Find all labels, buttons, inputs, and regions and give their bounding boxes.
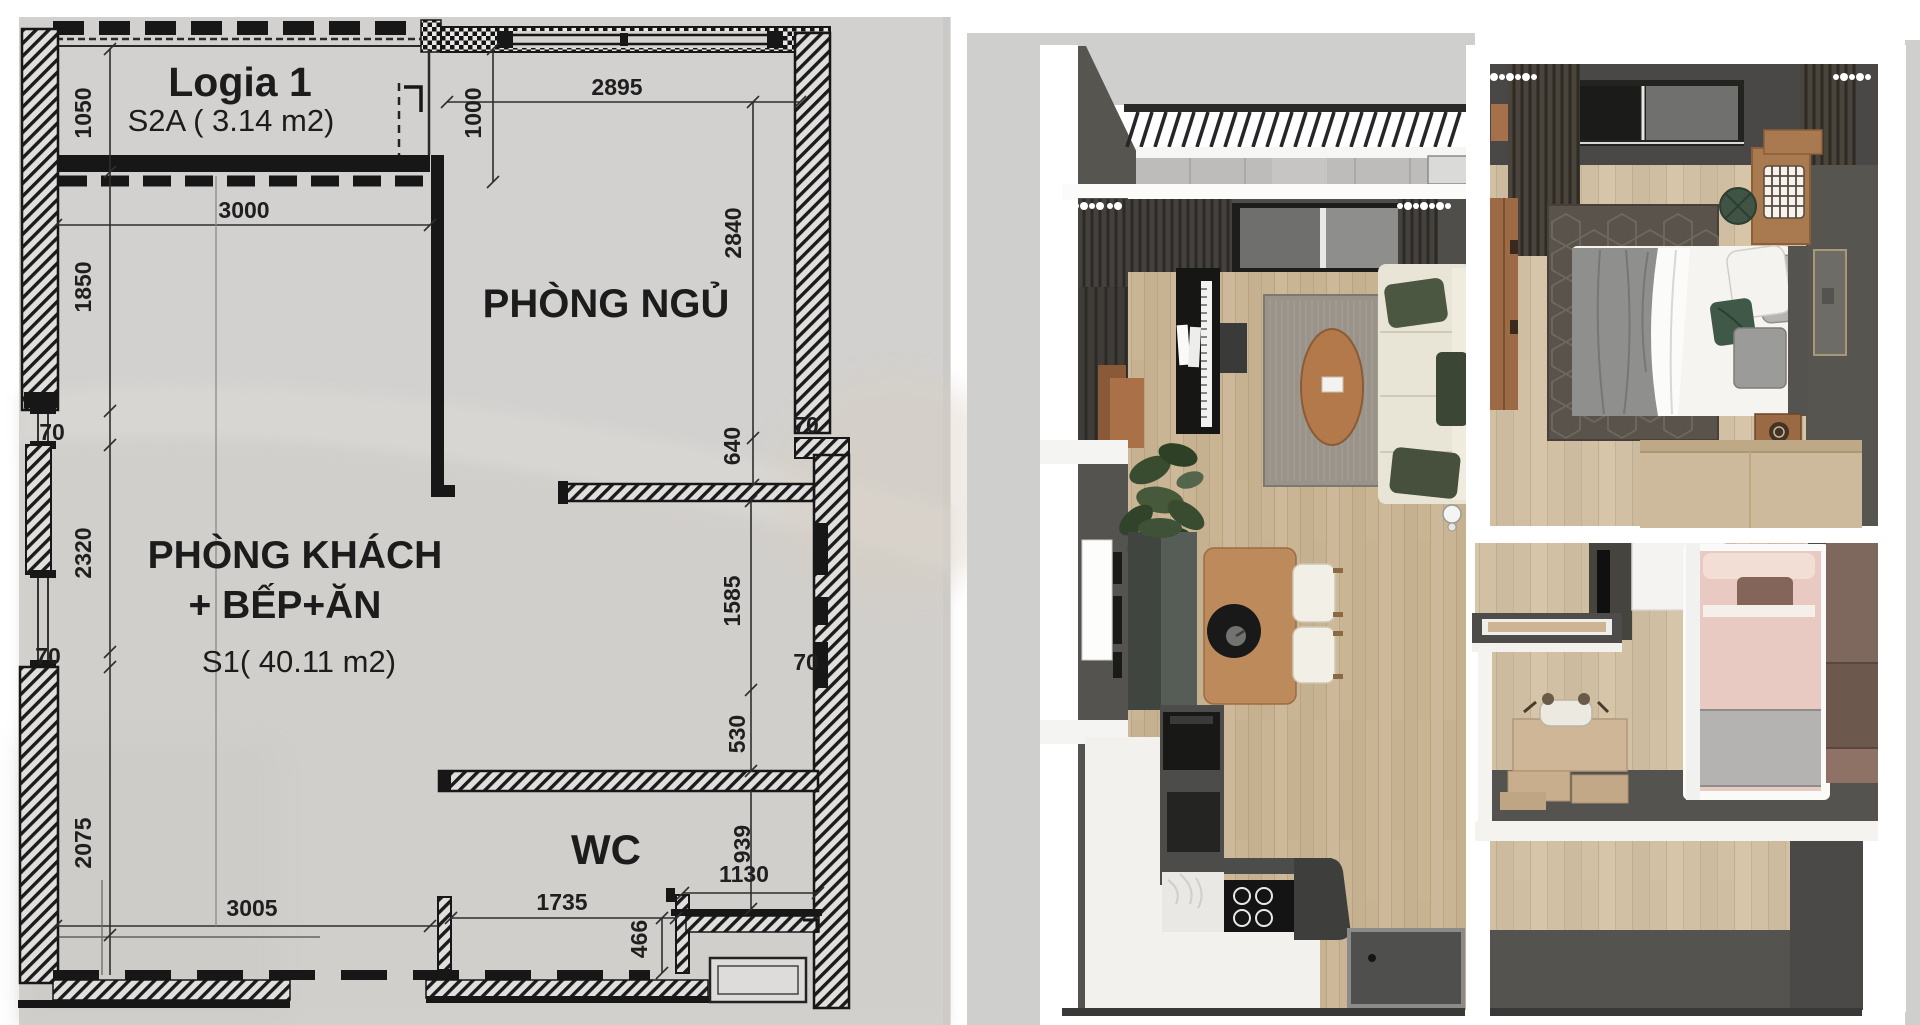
svg-text:PHÒNG NGỦ: PHÒNG NGỦ: [483, 280, 730, 326]
svg-text:2840: 2840: [720, 207, 746, 258]
svg-text:1050: 1050: [70, 87, 96, 138]
svg-text:2895: 2895: [591, 74, 642, 100]
svg-text:70: 70: [39, 419, 65, 445]
svg-text:PHÒNG KHÁCH: PHÒNG KHÁCH: [148, 533, 443, 577]
svg-text:70: 70: [793, 649, 819, 675]
svg-text:1585: 1585: [719, 575, 745, 626]
svg-text:S1( 40.11 m2): S1( 40.11 m2): [202, 644, 396, 679]
svg-text:70: 70: [35, 643, 61, 669]
svg-text:2320: 2320: [70, 527, 96, 578]
svg-text:939: 939: [729, 825, 755, 863]
svg-text:640: 640: [719, 427, 745, 465]
svg-text:3000: 3000: [218, 197, 269, 223]
svg-text:1130: 1130: [719, 861, 769, 887]
svg-text:70: 70: [793, 412, 819, 438]
svg-text:WC: WC: [571, 826, 641, 873]
svg-text:1000: 1000: [460, 87, 486, 138]
svg-text:S2A ( 3.14 m2): S2A ( 3.14 m2): [128, 103, 335, 138]
svg-text:Logia 1: Logia 1: [168, 59, 312, 105]
svg-text:1735: 1735: [536, 889, 587, 915]
svg-text:466: 466: [626, 920, 652, 958]
svg-text:1850: 1850: [70, 261, 96, 312]
svg-text:+ BẾP+ĂN: + BẾP+ĂN: [189, 583, 382, 627]
svg-text:3005: 3005: [226, 895, 277, 921]
svg-text:2075: 2075: [70, 817, 96, 868]
svg-text:530: 530: [724, 715, 750, 753]
